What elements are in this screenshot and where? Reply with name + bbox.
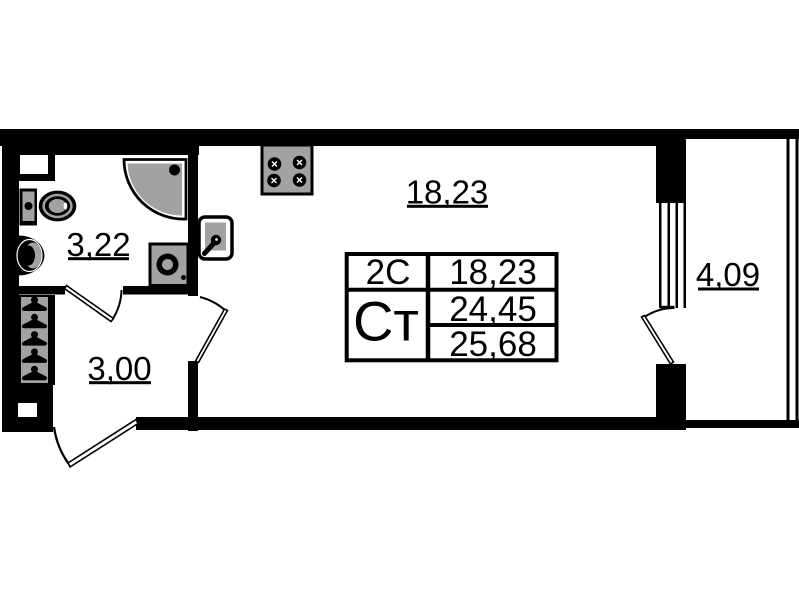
svg-text:Ст: Ст	[353, 290, 419, 353]
svg-text:18,23: 18,23	[449, 253, 537, 292]
svg-text:24,45: 24,45	[449, 290, 537, 329]
svg-text:25,68: 25,68	[449, 325, 537, 364]
svg-text:4,09: 4,09	[696, 256, 760, 293]
svg-text:2С: 2С	[366, 253, 411, 292]
